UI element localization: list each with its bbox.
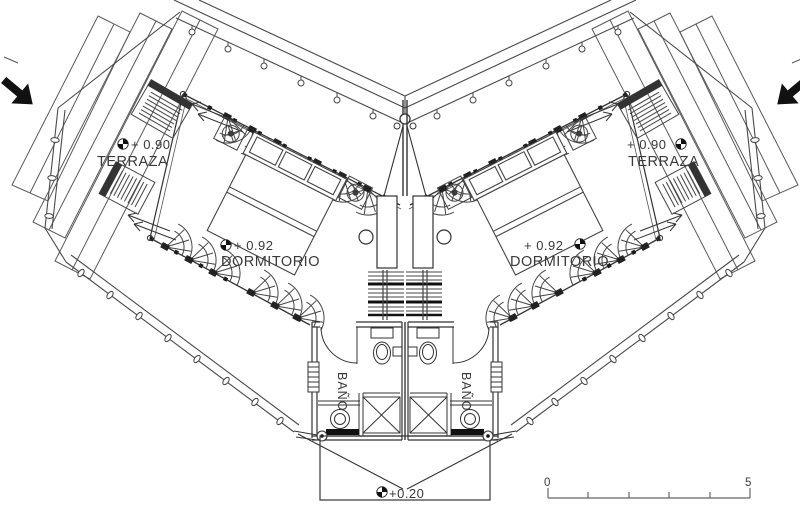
entry-level-label: +0.20 xyxy=(389,486,424,501)
bedroom-label-left: DORMITORIO xyxy=(221,254,320,270)
floor-plan-sheet: + 0.90 TERRAZA + 0.92 DORMITORIO + 0.90 … xyxy=(0,0,800,511)
bedroom-level-right: + 0.92 xyxy=(524,238,564,253)
level-marker-entry xyxy=(377,487,387,497)
bedroom-label-right: DORMITORIO xyxy=(510,254,609,270)
level-marker-bedroom-left xyxy=(221,240,231,250)
scale-bar xyxy=(548,488,750,498)
bedroom-level-left: + 0.92 xyxy=(234,238,274,253)
bath-label-left: BAÑO xyxy=(335,372,349,411)
terrace-level-right: + 0.90 xyxy=(627,137,667,152)
scale-end-label: 5 xyxy=(745,477,751,489)
terrace-level-left: + 0.90 xyxy=(131,137,171,152)
level-marker-bedroom-right xyxy=(575,239,585,249)
terrace-label-left: TERRAZA xyxy=(97,154,168,170)
terrace-label-right: TERRAZA xyxy=(628,154,699,170)
floor-plan-drawing: + 0.90 TERRAZA + 0.92 DORMITORIO + 0.90 … xyxy=(0,0,800,511)
level-marker-terrace-right xyxy=(676,139,686,149)
scale-start-label: 0 xyxy=(544,477,550,489)
bath-label-right: BAÑO xyxy=(459,372,473,411)
level-marker-terrace-left xyxy=(118,139,128,149)
